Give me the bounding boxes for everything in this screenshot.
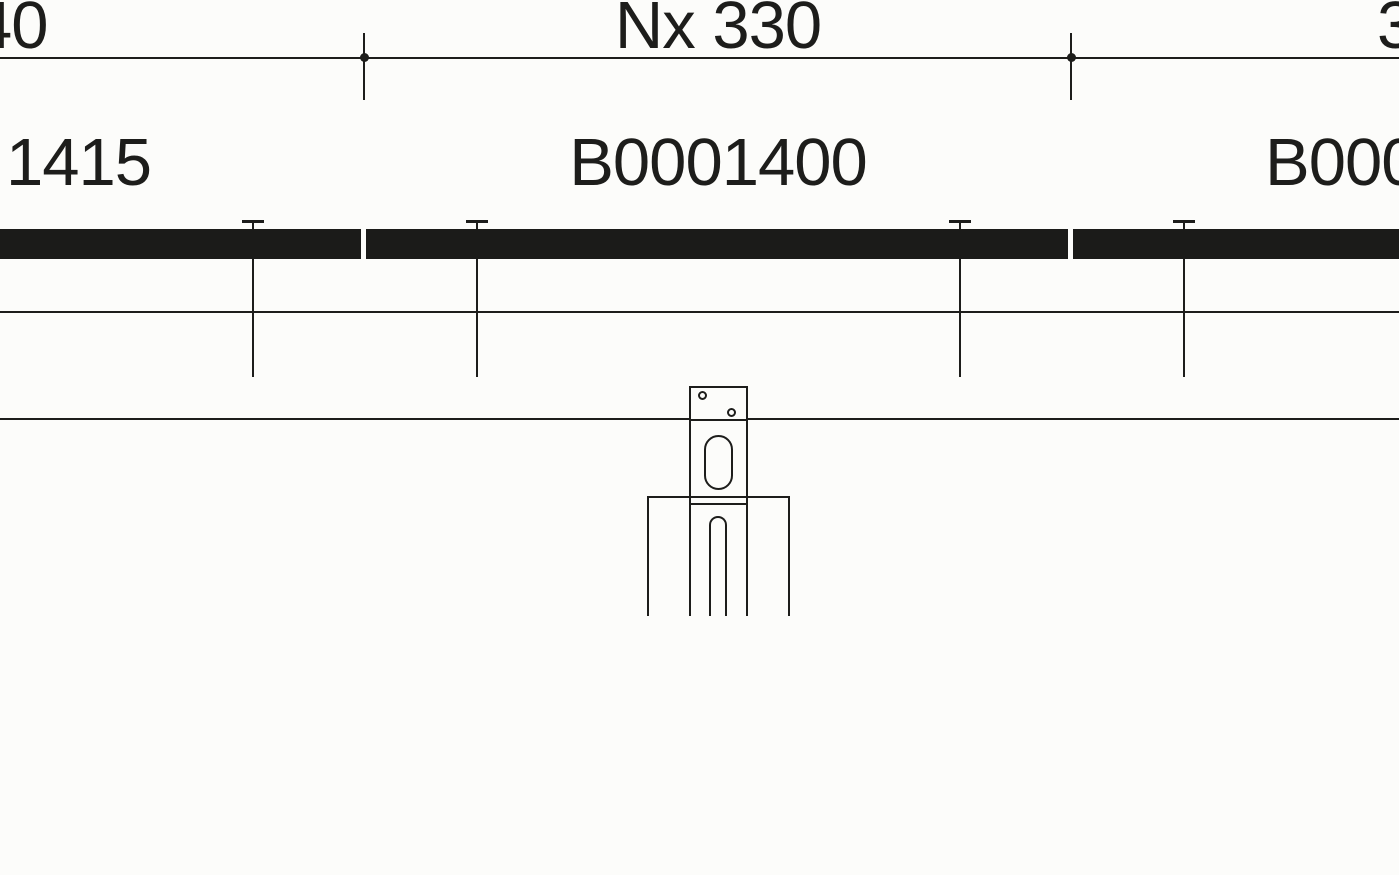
bracket-slot <box>704 435 733 490</box>
part-label-left: 1415 <box>6 129 151 196</box>
rail-segment-center <box>366 229 1068 259</box>
rail-segment-left <box>0 229 361 259</box>
dimension-tick-right <box>1070 33 1072 100</box>
anchor-bolt-head <box>949 220 971 223</box>
post-side-left <box>647 496 649 616</box>
post-channel-slot <box>709 516 727 616</box>
bracket-top-plate <box>689 386 748 421</box>
post-top-edge <box>647 496 790 498</box>
bolt-hole-lower <box>727 408 736 417</box>
dimension-label-right: 3 <box>1377 0 1399 59</box>
bolt-hole-upper <box>698 391 707 400</box>
dimension-node-dot-right <box>1067 53 1076 62</box>
edge-line-upper <box>0 311 1399 313</box>
dimension-node-dot-left <box>360 53 369 62</box>
anchor-bolt-head <box>466 220 488 223</box>
rail-segment-right <box>1073 229 1399 259</box>
anchor-bolt-head <box>242 220 264 223</box>
anchor-bolt-head <box>1173 220 1195 223</box>
dimension-label-left: 40 <box>0 0 48 59</box>
bracket-seam-line <box>689 503 748 505</box>
dimension-label-center: Nx 330 <box>615 0 821 59</box>
dimension-tick-left <box>363 33 365 100</box>
technical-drawing-canvas: 40 Nx 330 3 1415 B0001400 B000 <box>0 0 1399 875</box>
post-side-right <box>788 496 790 616</box>
part-label-center: B0001400 <box>569 129 867 196</box>
part-label-right: B000 <box>1265 129 1399 196</box>
